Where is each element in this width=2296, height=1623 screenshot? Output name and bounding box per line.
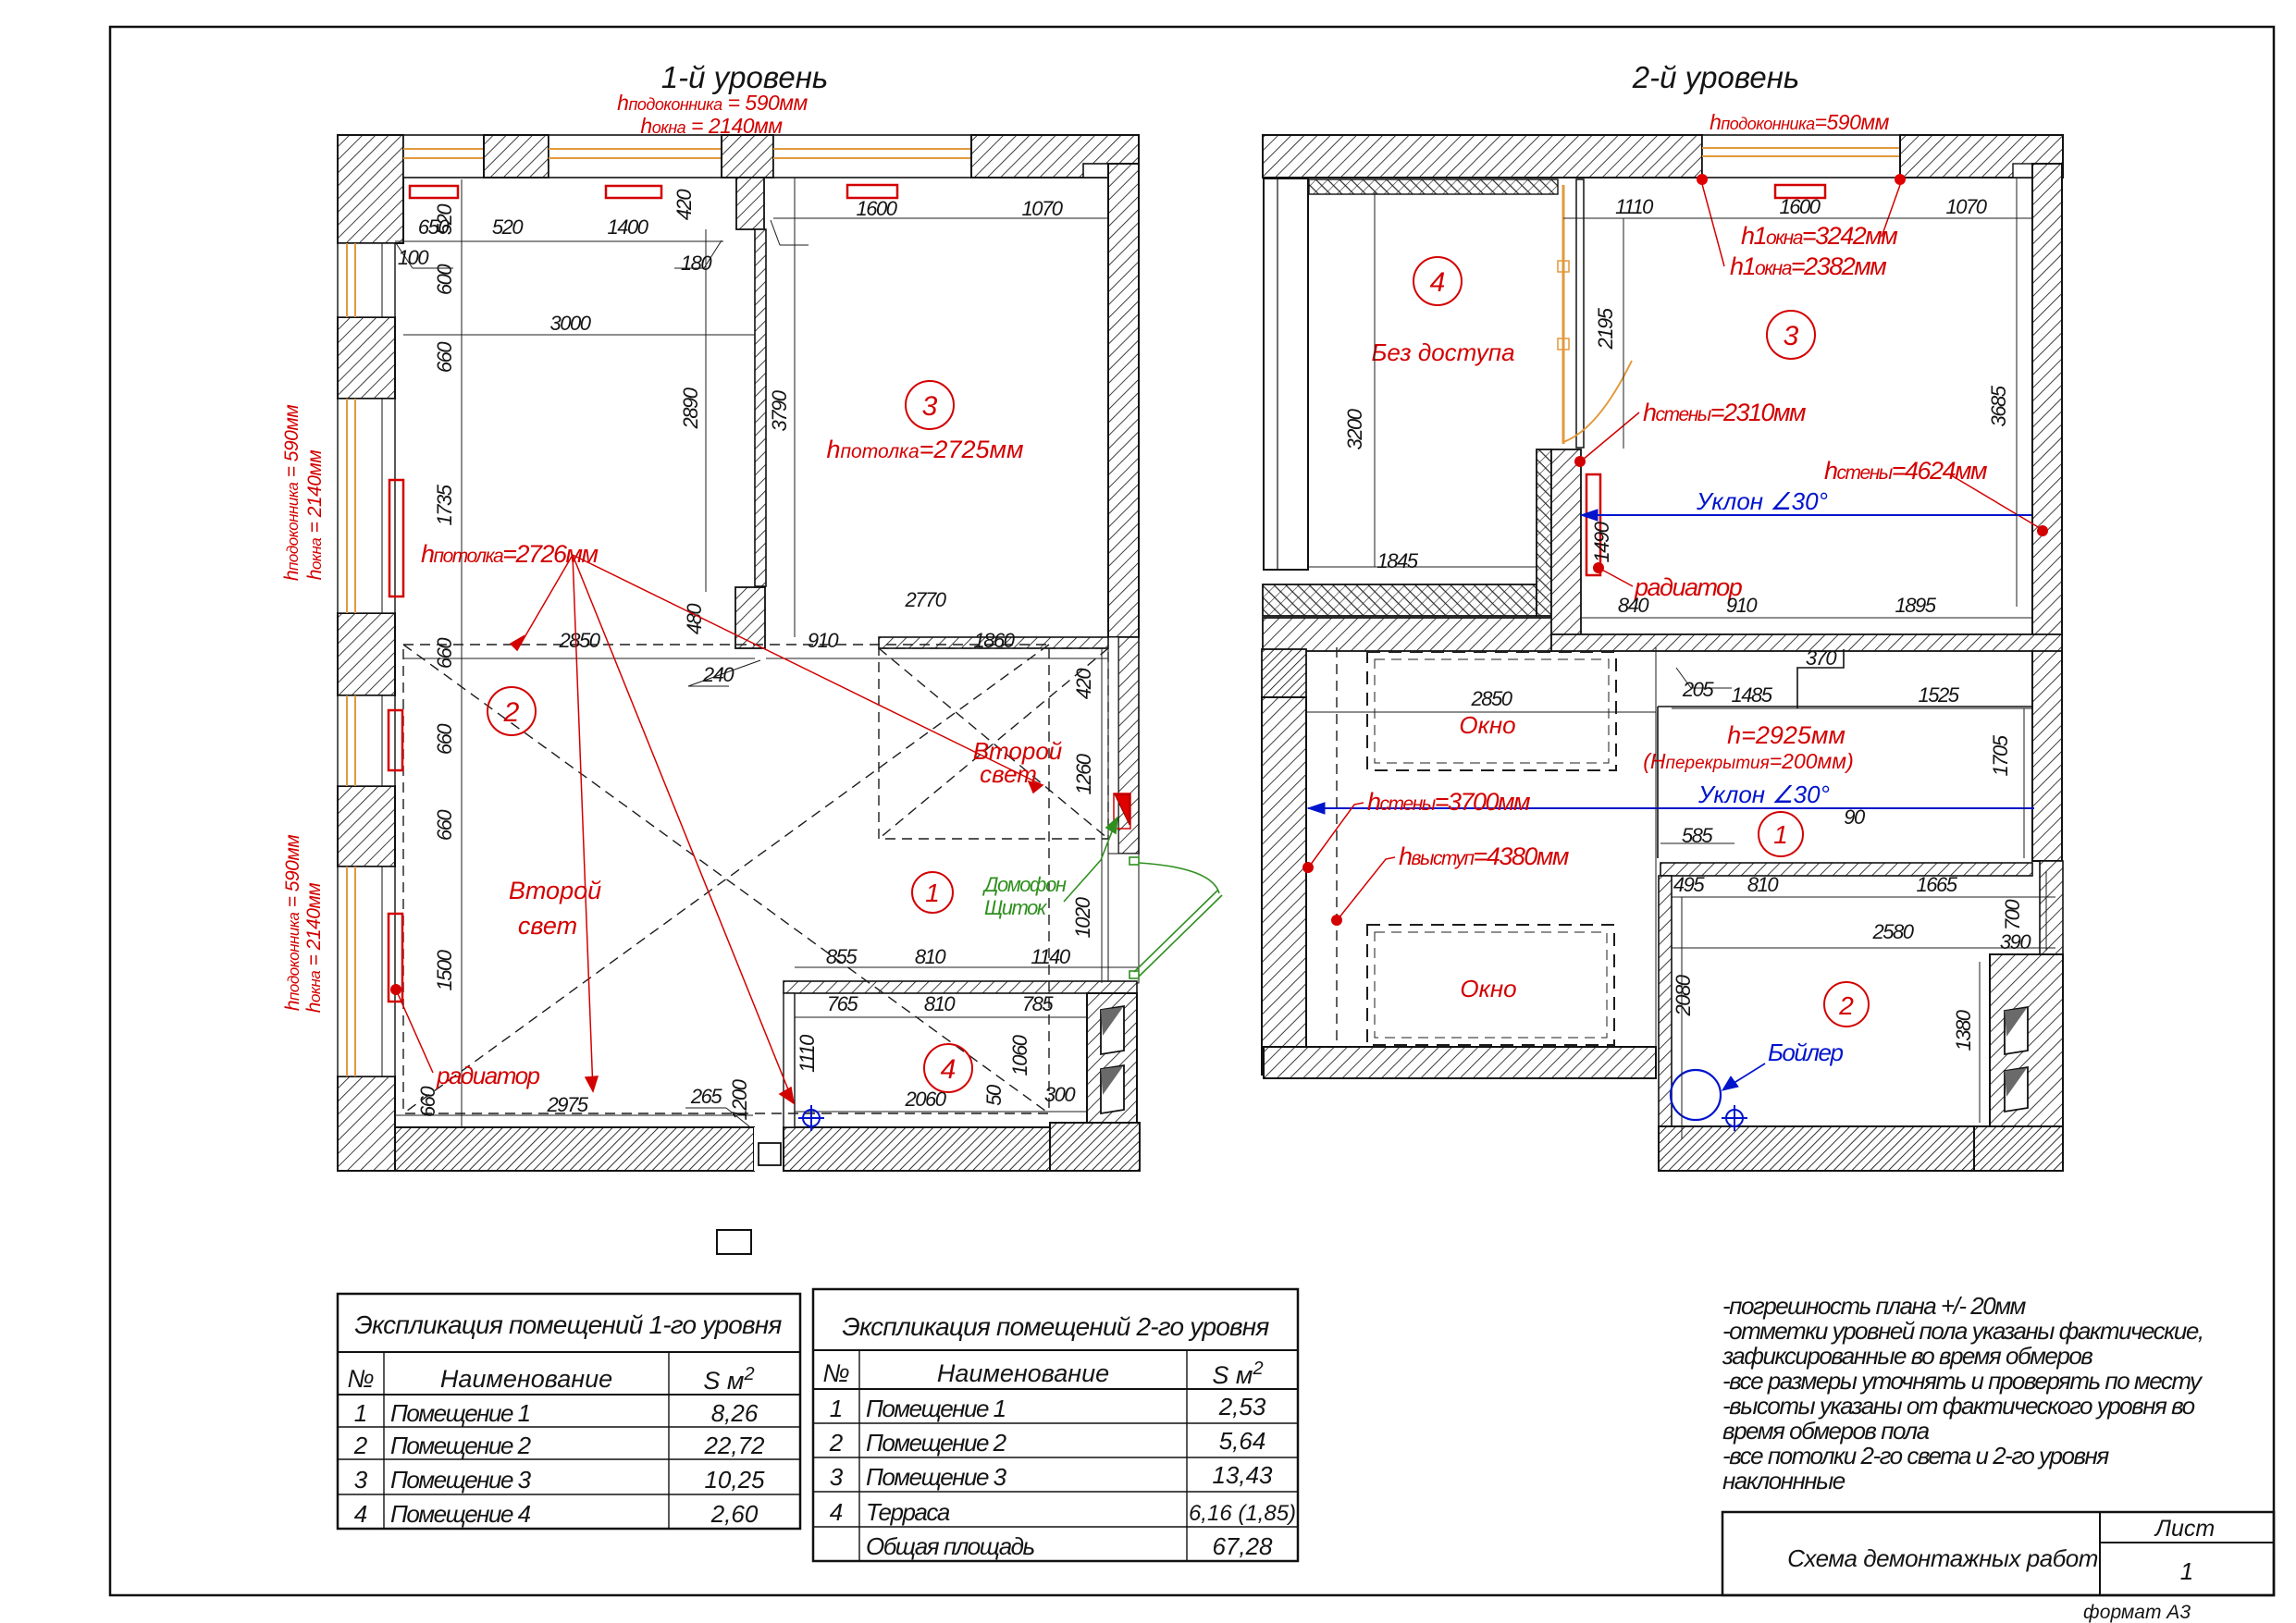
svg-text:1400: 1400 bbox=[608, 215, 649, 239]
svg-text:-отметки уровней пола указаны: -отметки уровней пола указаны фактически… bbox=[1722, 1317, 2203, 1345]
svg-text:660: 660 bbox=[433, 341, 456, 373]
svg-text:1860: 1860 bbox=[974, 629, 1016, 652]
svg-text:hподоконника = 590мм: hподоконника = 590мм bbox=[282, 835, 303, 1011]
svg-text:5,64: 5,64 bbox=[1219, 1427, 1266, 1455]
svg-text:840: 840 bbox=[1618, 594, 1649, 617]
svg-text:2: 2 bbox=[503, 697, 520, 728]
svg-text:180: 180 bbox=[681, 252, 712, 275]
svg-text:Щиток: Щиток bbox=[984, 896, 1048, 919]
svg-text:67,28: 67,28 bbox=[1212, 1532, 1273, 1560]
svg-text:1: 1 bbox=[925, 879, 940, 907]
svg-text:1: 1 bbox=[1773, 820, 1788, 849]
svg-text:1485: 1485 bbox=[1732, 683, 1773, 707]
svg-text:3200: 3200 bbox=[1343, 408, 1366, 449]
svg-text:1070: 1070 bbox=[1022, 197, 1064, 220]
svg-text:50: 50 bbox=[982, 1084, 1006, 1106]
svg-text:6,16 (1,85): 6,16 (1,85) bbox=[1189, 1501, 1296, 1526]
svg-text:240: 240 bbox=[702, 663, 734, 686]
svg-text:Помещение 4: Помещение 4 bbox=[390, 1500, 531, 1528]
svg-text:4: 4 bbox=[830, 1498, 843, 1526]
svg-text:1845: 1845 bbox=[1377, 549, 1419, 572]
svg-text:Бойлер: Бойлер bbox=[1768, 1039, 1843, 1066]
svg-text:600: 600 bbox=[433, 264, 456, 295]
svg-text:3: 3 bbox=[354, 1466, 368, 1494]
svg-text:h=2925мм: h=2925мм bbox=[1727, 721, 1845, 749]
svg-text:2770: 2770 bbox=[905, 588, 947, 611]
svg-text:585: 585 bbox=[1682, 824, 1713, 847]
svg-text:формат А3: формат А3 bbox=[2083, 1602, 2191, 1623]
svg-text:№: № bbox=[822, 1359, 849, 1387]
svg-text:2-й уровень: 2-й уровень bbox=[1632, 60, 1799, 94]
svg-text:1500: 1500 bbox=[433, 949, 456, 990]
svg-text:205: 205 bbox=[1682, 678, 1714, 701]
svg-text:3790: 3790 bbox=[768, 389, 791, 431]
svg-text:1490: 1490 bbox=[1590, 521, 1613, 562]
svg-text:Домофон: Домофон bbox=[981, 873, 1067, 896]
svg-text:855: 855 bbox=[826, 945, 858, 968]
svg-text:2: 2 bbox=[1838, 991, 1854, 1020]
svg-text:-погрешность плана +/- 20мм: -погрешность плана +/- 20мм bbox=[1722, 1292, 2027, 1320]
svg-text:785: 785 bbox=[1022, 992, 1054, 1015]
svg-text:2080: 2080 bbox=[1672, 974, 1695, 1016]
svg-text:2,53: 2,53 bbox=[1218, 1393, 1266, 1420]
svg-text:660: 660 bbox=[433, 809, 456, 841]
svg-text:Окно: Окно bbox=[1460, 975, 1516, 1002]
svg-text:1735: 1735 bbox=[433, 484, 456, 525]
svg-text:h1окна=3242мм: h1окна=3242мм bbox=[1741, 222, 1897, 250]
svg-text:520: 520 bbox=[433, 203, 456, 235]
svg-text:810: 810 bbox=[1747, 873, 1779, 896]
svg-text:420: 420 bbox=[1072, 668, 1095, 699]
svg-text:910: 910 bbox=[1726, 594, 1758, 617]
svg-text:1: 1 bbox=[354, 1399, 367, 1427]
svg-text:Помещение 1: Помещение 1 bbox=[866, 1395, 1006, 1422]
svg-text:390: 390 bbox=[2000, 930, 2031, 953]
svg-text:1-й уровень: 1-й уровень bbox=[661, 60, 828, 94]
svg-text:810: 810 bbox=[924, 992, 956, 1015]
svg-text:hокна = 2140мм: hокна = 2140мм bbox=[304, 450, 326, 581]
svg-text:1600: 1600 bbox=[1780, 195, 1821, 218]
svg-text:1380: 1380 bbox=[1952, 1009, 1975, 1051]
svg-text:2890: 2890 bbox=[679, 387, 702, 429]
svg-text:22,72: 22,72 bbox=[703, 1432, 765, 1459]
svg-text:765: 765 bbox=[827, 992, 858, 1015]
svg-text:2195: 2195 bbox=[1594, 307, 1617, 350]
svg-text:1705: 1705 bbox=[1989, 734, 2012, 776]
svg-text:300: 300 bbox=[1044, 1083, 1076, 1106]
svg-text:1525: 1525 bbox=[1919, 683, 1960, 707]
svg-text:-все потолки 2-го света и 2-го: -все потолки 2-го света и 2-го уровня bbox=[1722, 1442, 2109, 1469]
svg-text:1110: 1110 bbox=[796, 1034, 819, 1073]
svg-text:2: 2 bbox=[829, 1429, 844, 1457]
svg-text:420: 420 bbox=[673, 189, 696, 220]
svg-text:Помещение 1: Помещение 1 bbox=[390, 1399, 530, 1427]
svg-text:-все размеры уточнять и провер: -все размеры уточнять и проверять по мес… bbox=[1722, 1367, 2203, 1395]
svg-text:Наименование: Наименование bbox=[937, 1359, 1109, 1387]
svg-text:Помещение 2: Помещение 2 bbox=[866, 1429, 1007, 1457]
svg-text:4: 4 bbox=[941, 1054, 957, 1085]
svg-text:3: 3 bbox=[830, 1463, 844, 1491]
svg-text:660: 660 bbox=[433, 637, 456, 669]
svg-text:1020: 1020 bbox=[1071, 896, 1094, 938]
svg-text:h1окна=2382мм: h1окна=2382мм bbox=[1730, 252, 1886, 280]
svg-text:1: 1 bbox=[2180, 1557, 2193, 1585]
svg-text:Общая площадь: Общая площадь bbox=[866, 1532, 1035, 1560]
svg-text:Помещение 2: Помещение 2 bbox=[390, 1432, 532, 1459]
svg-text:Второй: Второй bbox=[509, 877, 601, 904]
svg-text:2850: 2850 bbox=[559, 629, 601, 652]
svg-text:Схема демонтажных работ: Схема демонтажных работ bbox=[1787, 1544, 2098, 1572]
svg-text:2975: 2975 bbox=[547, 1093, 589, 1116]
svg-text:3: 3 bbox=[922, 391, 938, 422]
svg-text:1665: 1665 bbox=[1917, 873, 1958, 896]
svg-text:радиатор: радиатор bbox=[436, 1062, 540, 1089]
svg-text:1200: 1200 bbox=[728, 1078, 751, 1120]
svg-text:90: 90 bbox=[1844, 805, 1866, 829]
svg-text:hокна = 2140мм: hокна = 2140мм bbox=[303, 883, 325, 1014]
svg-text:Экспликация помещений 1-го уро: Экспликация помещений 1-го уровня bbox=[354, 1310, 782, 1339]
svg-text:700: 700 bbox=[2001, 899, 2024, 930]
svg-text:-высоты указаны от фактическог: -высоты указаны от фактического уровня в… bbox=[1722, 1392, 2195, 1420]
svg-text:1895: 1895 bbox=[1895, 594, 1937, 617]
svg-text:495: 495 bbox=[1673, 873, 1705, 896]
svg-text:Терраса: Терраса bbox=[866, 1498, 950, 1526]
svg-text:660: 660 bbox=[416, 1086, 439, 1117]
svg-text:8,26: 8,26 bbox=[711, 1399, 759, 1427]
svg-text:2,60: 2,60 bbox=[710, 1500, 759, 1528]
svg-text:1060: 1060 bbox=[1008, 1034, 1031, 1076]
svg-text:4: 4 bbox=[1430, 267, 1446, 298]
svg-text:Уклон ∠30°: Уклон ∠30° bbox=[1697, 781, 1830, 808]
svg-text:265: 265 bbox=[690, 1085, 722, 1108]
svg-text:2850: 2850 bbox=[1471, 687, 1513, 710]
svg-text:810: 810 bbox=[915, 945, 946, 968]
svg-text:10,25: 10,25 bbox=[704, 1466, 765, 1494]
svg-text:370: 370 bbox=[1806, 646, 1837, 670]
svg-text:Окно: Окно bbox=[1459, 711, 1515, 739]
svg-text:1600: 1600 bbox=[857, 197, 898, 220]
svg-text:1140: 1140 bbox=[1031, 945, 1071, 968]
svg-text:100: 100 bbox=[398, 246, 429, 269]
svg-text:№: № bbox=[347, 1365, 374, 1393]
svg-text:Помещение 3: Помещение 3 bbox=[390, 1466, 532, 1494]
svg-text:4: 4 bbox=[354, 1500, 367, 1528]
svg-text:Экспликация помещений 2-го уро: Экспликация помещений 2-го уровня bbox=[842, 1312, 1269, 1341]
svg-text:3: 3 bbox=[1784, 321, 1799, 351]
svg-text:1260: 1260 bbox=[1072, 753, 1095, 794]
svg-text:Лист: Лист bbox=[2154, 1516, 2215, 1542]
svg-text:1: 1 bbox=[830, 1395, 843, 1422]
svg-text:hподоконника = 590мм: hподоконника = 590мм bbox=[281, 405, 302, 581]
svg-text:1110: 1110 bbox=[1615, 195, 1654, 218]
svg-text:Без доступа: Без доступа bbox=[1371, 338, 1514, 366]
svg-text:520: 520 bbox=[492, 215, 524, 239]
svg-text:время обмеров пола: время обмеров пола bbox=[1722, 1417, 1930, 1445]
svg-text:зафиксированные во время обмер: зафиксированные во время обмеров bbox=[1722, 1342, 2092, 1370]
svg-text:Уклон ∠30°: Уклон ∠30° bbox=[1696, 487, 1828, 515]
svg-text:910: 910 bbox=[808, 629, 839, 652]
svg-text:2: 2 bbox=[353, 1432, 368, 1459]
svg-text:3000: 3000 bbox=[550, 312, 592, 335]
svg-text:2580: 2580 bbox=[1872, 920, 1915, 943]
svg-text:13,43: 13,43 bbox=[1212, 1461, 1273, 1489]
svg-text:свет: свет bbox=[518, 912, 577, 940]
svg-text:660: 660 bbox=[433, 723, 456, 755]
svg-text:свет: свет bbox=[980, 760, 1037, 788]
svg-text:наклоннные: наклоннные bbox=[1722, 1467, 1845, 1494]
svg-text:Помещение 3: Помещение 3 bbox=[866, 1463, 1007, 1491]
svg-text:3685: 3685 bbox=[1987, 385, 2010, 426]
svg-text:1070: 1070 bbox=[1946, 195, 1988, 218]
svg-text:Наименование: Наименование bbox=[440, 1365, 612, 1393]
